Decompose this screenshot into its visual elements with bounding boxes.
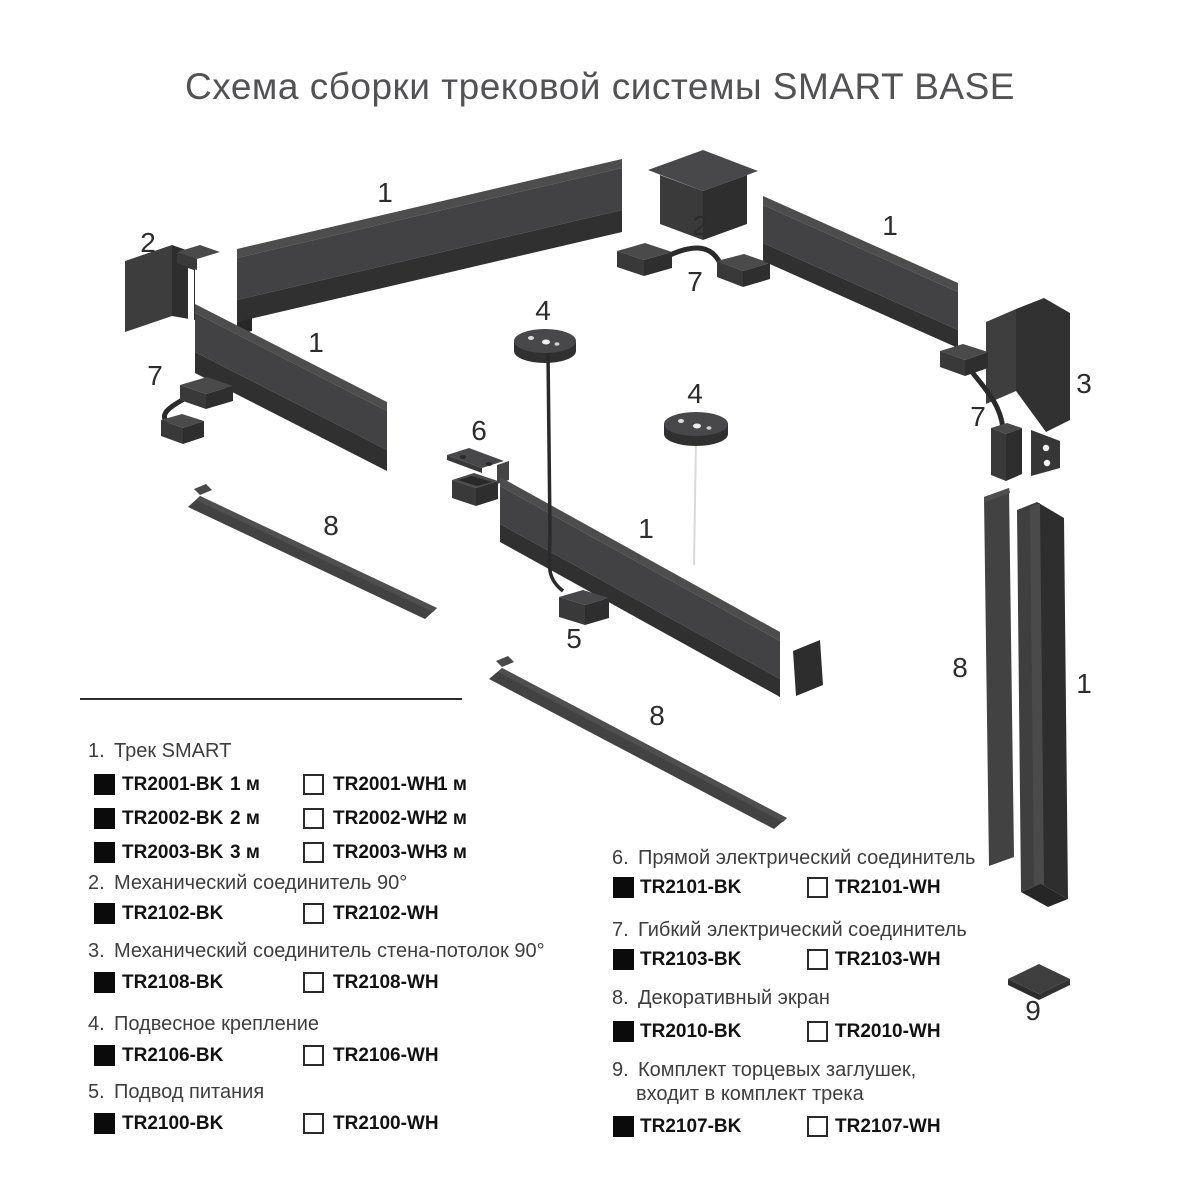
product-code: TR2103-BK bbox=[640, 949, 741, 970]
legend-row: TR2103-BK TR2103-WH bbox=[613, 949, 1083, 970]
white-swatch-checkbox bbox=[807, 1116, 828, 1137]
flex-connector-7-left bbox=[161, 377, 233, 444]
legend-row: TR2001-BK 1 м TR2001-WH 1 м bbox=[94, 774, 564, 795]
legend-item-name: Подвесное крепление bbox=[114, 1012, 319, 1036]
legend-item-name: Прямой электрический соединитель bbox=[638, 846, 975, 870]
white-swatch-checkbox bbox=[303, 842, 324, 863]
legend-item-name: входит в комплект трека bbox=[636, 1082, 864, 1106]
catalog-page: Схема сборки трековой системы SMART BASE bbox=[0, 0, 1200, 1200]
black-swatch-checkbox bbox=[613, 1021, 634, 1042]
white-swatch-checkbox bbox=[303, 808, 324, 829]
white-swatch-checkbox bbox=[807, 949, 828, 970]
legend-item-1-title: 1. Трек SMART bbox=[88, 739, 231, 763]
legend-item-name: Декоративный экран bbox=[638, 986, 830, 1010]
legend-item-name: Механический соединитель стена-потолок 9… bbox=[114, 939, 545, 963]
straight-connector-6 bbox=[447, 448, 504, 506]
product-code: TR2108-WH bbox=[333, 972, 439, 993]
product-code: TR2106-BK bbox=[122, 1045, 223, 1066]
product-code: TR2100-WH bbox=[333, 1113, 439, 1134]
part-number-label: 8 bbox=[952, 652, 968, 683]
legend-separator bbox=[80, 698, 462, 700]
length-label: 3 м bbox=[230, 842, 260, 863]
black-swatch-checkbox bbox=[613, 877, 634, 898]
legend-item-4-title: 4. Подвесное крепление bbox=[88, 1012, 319, 1036]
product-code: TR2010-BK bbox=[640, 1021, 741, 1042]
track-top-left bbox=[237, 159, 622, 335]
track-center bbox=[497, 461, 823, 697]
product-code: TR2003-BK bbox=[122, 842, 223, 863]
legend-item-number: 9. bbox=[612, 1058, 630, 1082]
legend-row: TR2100-BK TR2100-WH bbox=[94, 1113, 564, 1134]
part-number-label: 8 bbox=[323, 510, 339, 541]
white-swatch-checkbox bbox=[303, 1045, 324, 1066]
product-code: TR2107-WH bbox=[835, 1116, 941, 1137]
part-number-label: 7 bbox=[147, 360, 163, 391]
legend-item-name: Механический соединитель 90° bbox=[114, 871, 407, 895]
legend-row: TR2107-BK TR2107-WH bbox=[613, 1116, 1083, 1137]
white-swatch-checkbox bbox=[303, 1113, 324, 1134]
page-title: Схема сборки трековой системы SMART BASE bbox=[0, 66, 1200, 108]
white-swatch-checkbox bbox=[807, 877, 828, 898]
white-swatch-checkbox bbox=[303, 972, 324, 993]
product-code: TR2102-WH bbox=[333, 903, 439, 924]
product-code: TR2002-BK bbox=[122, 808, 223, 829]
legend-item-number: 8. bbox=[612, 986, 630, 1010]
product-code: TR2102-BK bbox=[122, 903, 223, 924]
product-code: TR2002-WH bbox=[333, 808, 439, 829]
part-number-label: 1 bbox=[882, 210, 898, 241]
suspension-canopy-b bbox=[664, 412, 728, 565]
legend-item-5-title: 5. Подвод питания bbox=[88, 1080, 264, 1104]
legend-item-3-title: 3. Механический соединитель стена-потоло… bbox=[88, 939, 545, 963]
legend-item-6-title: 6. Прямой электрический соединитель bbox=[612, 846, 975, 870]
product-code: TR2010-WH bbox=[835, 1021, 941, 1042]
product-code: TR2001-WH bbox=[333, 774, 439, 795]
product-code: TR2103-WH bbox=[835, 949, 941, 970]
part-number-label: 5 bbox=[566, 623, 582, 654]
legend-item-name: Трек SMART bbox=[114, 739, 231, 763]
part-number-label: 4 bbox=[687, 378, 703, 409]
length-label: 1 м bbox=[437, 774, 467, 795]
legend-item-name: Гибкий электрический соединитель bbox=[638, 918, 967, 942]
product-code: TR2100-BK bbox=[122, 1113, 223, 1134]
legend-item-2-title: 2. Механический соединитель 90° bbox=[88, 871, 407, 895]
legend-row: TR2002-BK 2 м TR2002-WH 2 м bbox=[94, 808, 564, 829]
legend-item-number: 1. bbox=[88, 739, 106, 763]
product-code: TR2106-WH bbox=[333, 1045, 439, 1066]
legend-item-name: Подвод питания bbox=[114, 1080, 264, 1104]
product-code: TR2107-BK bbox=[640, 1116, 741, 1137]
part-number-label: 7 bbox=[970, 401, 986, 432]
legend-row: TR2108-BK TR2108-WH bbox=[94, 972, 564, 993]
track-top-right bbox=[763, 196, 958, 348]
white-swatch-checkbox bbox=[303, 774, 324, 795]
legend-row: TR2010-BK TR2010-WH bbox=[613, 1021, 1083, 1042]
black-swatch-checkbox bbox=[613, 1116, 634, 1137]
legend-item-9-title-line2: входит в комплект трека bbox=[636, 1082, 864, 1106]
black-swatch-checkbox bbox=[94, 774, 115, 795]
legend-item-number: 2. bbox=[88, 871, 106, 895]
length-label: 2 м bbox=[230, 808, 260, 829]
black-swatch-checkbox bbox=[94, 972, 115, 993]
part-number-label: 1 bbox=[377, 177, 393, 208]
legend-item-number: 5. bbox=[88, 1080, 106, 1104]
screen-right-vertical bbox=[984, 488, 1014, 866]
legend-item-8-title: 8. Декоративный экран bbox=[612, 986, 830, 1010]
screen-mid bbox=[489, 656, 787, 829]
part-number-label: 6 bbox=[471, 415, 487, 446]
part-number-label: 2 bbox=[140, 227, 156, 258]
legend-item-number: 7. bbox=[612, 918, 630, 942]
product-code: TR2101-WH bbox=[835, 877, 941, 898]
black-swatch-checkbox bbox=[94, 842, 115, 863]
screen-left bbox=[188, 484, 437, 619]
product-code: TR2101-BK bbox=[640, 877, 741, 898]
part-number-label: 4 bbox=[535, 295, 551, 326]
white-swatch-checkbox bbox=[807, 1021, 828, 1042]
black-swatch-checkbox bbox=[94, 903, 115, 924]
black-swatch-checkbox bbox=[94, 808, 115, 829]
black-swatch-checkbox bbox=[94, 1113, 115, 1134]
black-swatch-checkbox bbox=[94, 1045, 115, 1066]
legend-item-9-title: 9. Комплект торцевых заглушек, bbox=[612, 1058, 916, 1082]
product-code: TR2001-BK bbox=[122, 774, 223, 795]
track-right-vertical bbox=[1017, 502, 1068, 907]
black-swatch-checkbox bbox=[613, 949, 634, 970]
legend-row: TR2106-BK TR2106-WH bbox=[94, 1045, 564, 1066]
part-number-label: 1 bbox=[1076, 668, 1092, 699]
legend-item-number: 3. bbox=[88, 939, 106, 963]
legend-item-number: 4. bbox=[88, 1012, 106, 1036]
part-number-label: 1 bbox=[638, 513, 654, 544]
legend-item-name: Комплект торцевых заглушек, bbox=[638, 1058, 916, 1082]
part-number-label: 2 bbox=[692, 210, 708, 241]
legend-row: TR2102-BK TR2102-WH bbox=[94, 903, 564, 924]
product-code: TR2108-BK bbox=[122, 972, 223, 993]
length-label: 3 м bbox=[437, 842, 467, 863]
length-label: 2 м bbox=[437, 808, 467, 829]
part-number-label: 3 bbox=[1076, 368, 1092, 399]
legend-row: TR2101-BK TR2101-WH bbox=[613, 877, 1083, 898]
length-label: 1 м bbox=[230, 774, 260, 795]
legend-item-number: 6. bbox=[612, 846, 630, 870]
part-number-label: 1 bbox=[308, 327, 324, 358]
suspension-canopy-a bbox=[514, 329, 576, 363]
part-number-label: 7 bbox=[687, 266, 703, 297]
part-number-label: 8 bbox=[649, 700, 665, 731]
product-code: TR2003-WH bbox=[333, 842, 439, 863]
legend-row: TR2003-BK 3 м TR2003-WH 3 м bbox=[94, 842, 564, 863]
legend-item-7-title: 7. Гибкий электрический соединитель bbox=[612, 918, 967, 942]
white-swatch-checkbox bbox=[303, 903, 324, 924]
